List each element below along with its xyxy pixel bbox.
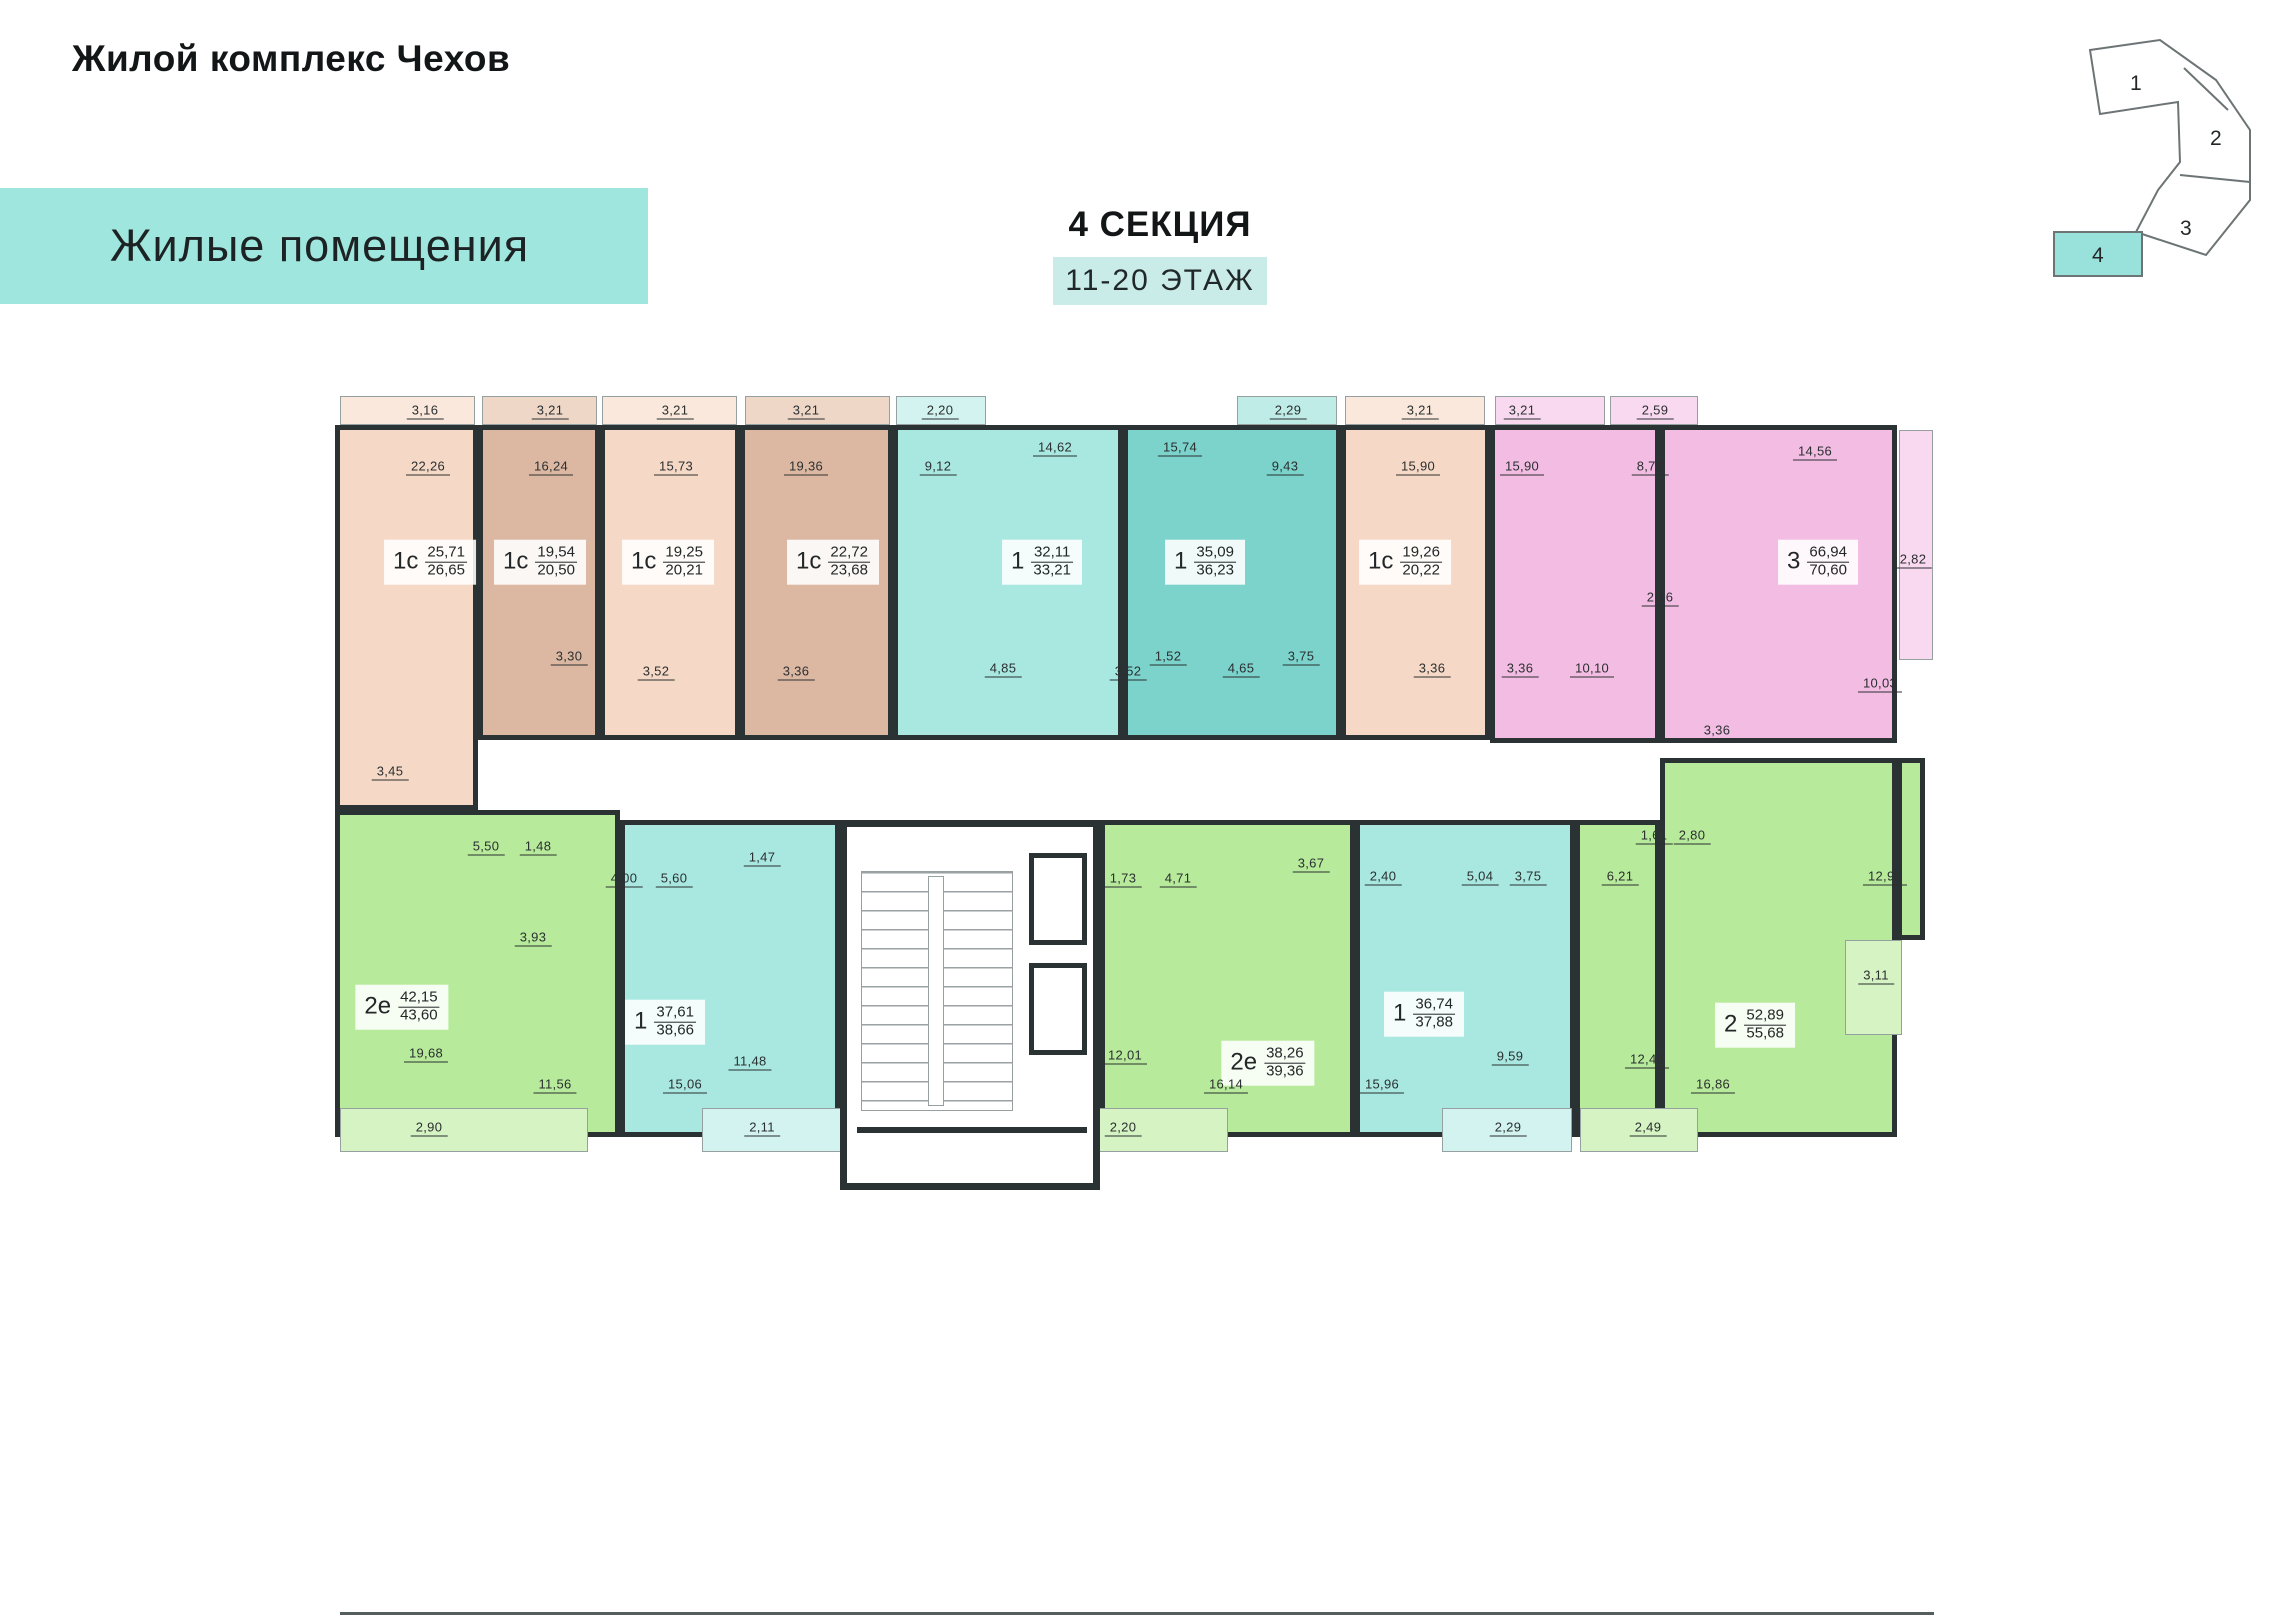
room-area-label: 3,21 bbox=[532, 403, 569, 420]
room-area-label: 4,85 bbox=[985, 661, 1022, 678]
room-area-label: 9,12 bbox=[920, 459, 957, 476]
room-area-label: 2,90 bbox=[411, 1120, 448, 1137]
room-area-label: 16,86 bbox=[1691, 1077, 1735, 1094]
room-area-label: 3,21 bbox=[657, 403, 694, 420]
room-area-label: 4,00 bbox=[606, 871, 643, 888]
room-area-label: 15,90 bbox=[1500, 459, 1544, 476]
apartment-label-u2: 1с19,5420,50 bbox=[494, 540, 586, 585]
apartment-label-u1: 1с25,7126,65 bbox=[384, 540, 476, 585]
room-area-label: 2,20 bbox=[922, 403, 959, 420]
room-area-label: 11,56 bbox=[533, 1077, 576, 1094]
room-area-label: 1,73 bbox=[1105, 871, 1142, 888]
room-area-label: 16,14 bbox=[1204, 1077, 1248, 1094]
room-area-label: 2,82 bbox=[1895, 552, 1932, 569]
room-area-label: 2,40 bbox=[1365, 869, 1402, 886]
apartment-label-u3: 1с19,2520,21 bbox=[622, 540, 714, 585]
room-area-label: 19,68 bbox=[404, 1046, 448, 1063]
floor-plan: 1с25,7126,651с19,5420,501с19,2520,211с22… bbox=[0, 0, 2291, 1620]
room-area-label: 4,65 bbox=[1223, 661, 1260, 678]
staircase bbox=[861, 871, 1013, 1111]
room-area-label: 15,90 bbox=[1396, 459, 1440, 476]
stair-elevator-core bbox=[840, 820, 1100, 1190]
room-area-label: 6,21 bbox=[1602, 869, 1639, 886]
room-area-label: 12,01 bbox=[1103, 1048, 1147, 1065]
room-area-label: 2,29 bbox=[1490, 1120, 1527, 1137]
room-area-label: 3,75 bbox=[1283, 649, 1320, 666]
room-area-label: 2,59 bbox=[1637, 403, 1674, 420]
room-area-label: 5,50 bbox=[468, 839, 505, 856]
apartment-label-u6: 135,0936,23 bbox=[1165, 540, 1245, 585]
room-area-label: 3,67 bbox=[1293, 856, 1330, 873]
apartment-l5[interactable] bbox=[1897, 758, 1925, 940]
apartment-label-l1: 2е42,1543,60 bbox=[355, 985, 448, 1030]
room-area-label: 8,76 bbox=[1632, 459, 1669, 476]
room-area-label: 2,11 bbox=[744, 1120, 780, 1137]
footer-line bbox=[340, 1612, 1934, 1615]
room-area-label: 2,49 bbox=[1630, 1120, 1667, 1137]
room-area-label: 3,36 bbox=[1502, 661, 1539, 678]
room-area-label: 3,75 bbox=[1510, 869, 1547, 886]
balcony bbox=[1845, 940, 1902, 1035]
balcony bbox=[1899, 430, 1933, 660]
apartment-label-l5: 252,8955,68 bbox=[1715, 1003, 1795, 1048]
room-area-label: 3,52 bbox=[638, 664, 675, 681]
room-area-label: 1,61 bbox=[1636, 828, 1673, 845]
room-area-label: 22,26 bbox=[406, 459, 450, 476]
room-area-label: 3,21 bbox=[788, 403, 825, 420]
apartment-label-l4: 136,7437,88 bbox=[1384, 992, 1464, 1037]
elevator-shaft-2 bbox=[1029, 963, 1087, 1055]
room-area-label: 5,60 bbox=[656, 871, 693, 888]
room-area-label: 1,47 bbox=[744, 850, 781, 867]
balcony bbox=[340, 1108, 588, 1152]
apartment-l2[interactable] bbox=[620, 820, 840, 1137]
room-area-label: 16,24 bbox=[529, 459, 573, 476]
apartment-u1[interactable] bbox=[335, 425, 478, 810]
room-area-label: 12,95 bbox=[1863, 869, 1907, 886]
room-area-label: 3,21 bbox=[1504, 403, 1541, 420]
room-area-label: 10,03 bbox=[1858, 676, 1902, 693]
room-area-label: 3,52 bbox=[1110, 664, 1147, 681]
room-area-label: 2,16 bbox=[1642, 590, 1679, 607]
room-area-label: 15,06 bbox=[663, 1077, 707, 1094]
room-area-label: 3,11 bbox=[1858, 968, 1894, 985]
room-area-label: 3,36 bbox=[1699, 723, 1736, 740]
room-area-label: 2,80 bbox=[1674, 828, 1711, 845]
room-area-label: 15,74 bbox=[1158, 440, 1202, 457]
room-area-label: 2,29 bbox=[1270, 403, 1307, 420]
room-area-label: 12,46 bbox=[1625, 1052, 1669, 1069]
room-area-label: 1,52 bbox=[1150, 649, 1187, 666]
room-area-label: 3,36 bbox=[1414, 661, 1451, 678]
room-area-label: 1,48 bbox=[520, 839, 557, 856]
room-area-label: 3,21 bbox=[1402, 403, 1439, 420]
apartment-label-u7: 1с19,2620,22 bbox=[1359, 540, 1451, 585]
apartment-label-l2: 137,6138,66 bbox=[625, 1000, 705, 1045]
room-area-label: 15,96 bbox=[1360, 1077, 1404, 1094]
room-area-label: 14,62 bbox=[1033, 440, 1077, 457]
room-area-label: 9,59 bbox=[1492, 1049, 1529, 1066]
room-area-label: 3,93 bbox=[515, 930, 552, 947]
room-area-label: 10,10 bbox=[1570, 661, 1614, 678]
apartment-label-u5: 132,1133,21 bbox=[1002, 540, 1082, 585]
room-area-label: 9,43 bbox=[1267, 459, 1304, 476]
room-area-label: 3,45 bbox=[372, 764, 409, 781]
room-area-label: 15,73 bbox=[654, 459, 698, 476]
apartment-l1[interactable] bbox=[335, 810, 620, 1137]
room-area-label: 3,16 bbox=[407, 403, 444, 420]
apartment-label-u4: 1с22,7223,68 bbox=[787, 540, 879, 585]
room-area-label: 4,71 bbox=[1160, 871, 1197, 888]
room-area-label: 2,20 bbox=[1105, 1120, 1142, 1137]
room-area-label: 3,30 bbox=[551, 649, 588, 666]
room-area-label: 11,48 bbox=[728, 1054, 771, 1071]
elevator-shaft-1 bbox=[1029, 853, 1087, 945]
room-area-label: 14,56 bbox=[1793, 444, 1837, 461]
room-area-label: 19,36 bbox=[784, 459, 828, 476]
room-area-label: 3,36 bbox=[778, 664, 815, 681]
apartment-label-u8: 366,9470,60 bbox=[1778, 540, 1858, 585]
core-wall bbox=[857, 1127, 1087, 1133]
room-area-label: 5,04 bbox=[1462, 869, 1499, 886]
